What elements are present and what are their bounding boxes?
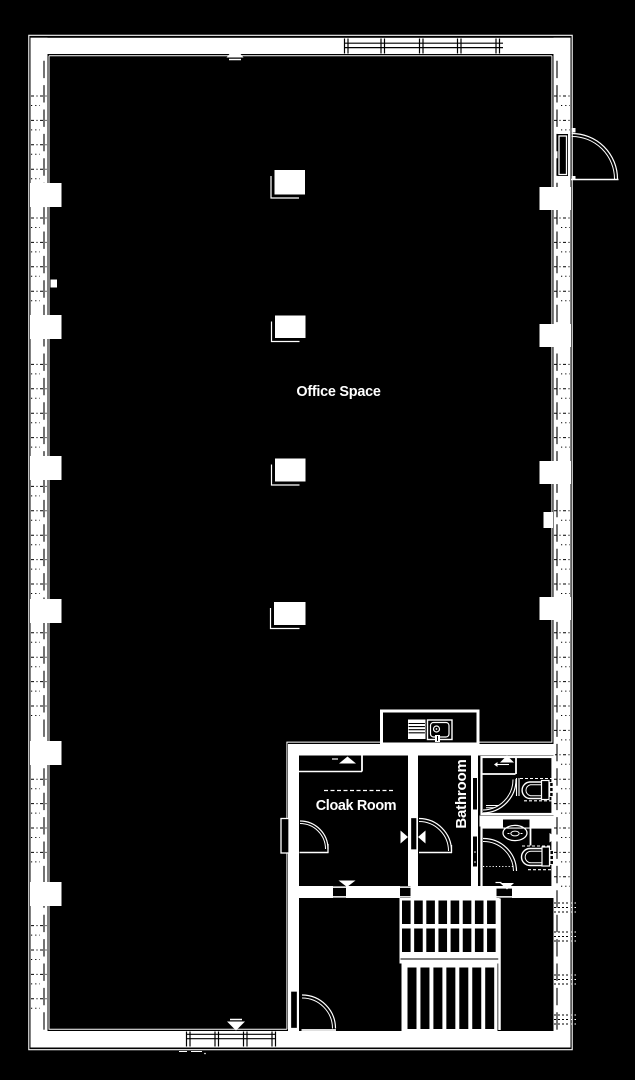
svg-text:Cloak Room: Cloak Room	[316, 798, 396, 814]
svg-text:Bathroom: Bathroom	[453, 759, 470, 828]
svg-text:Office Space: Office Space	[296, 384, 380, 400]
